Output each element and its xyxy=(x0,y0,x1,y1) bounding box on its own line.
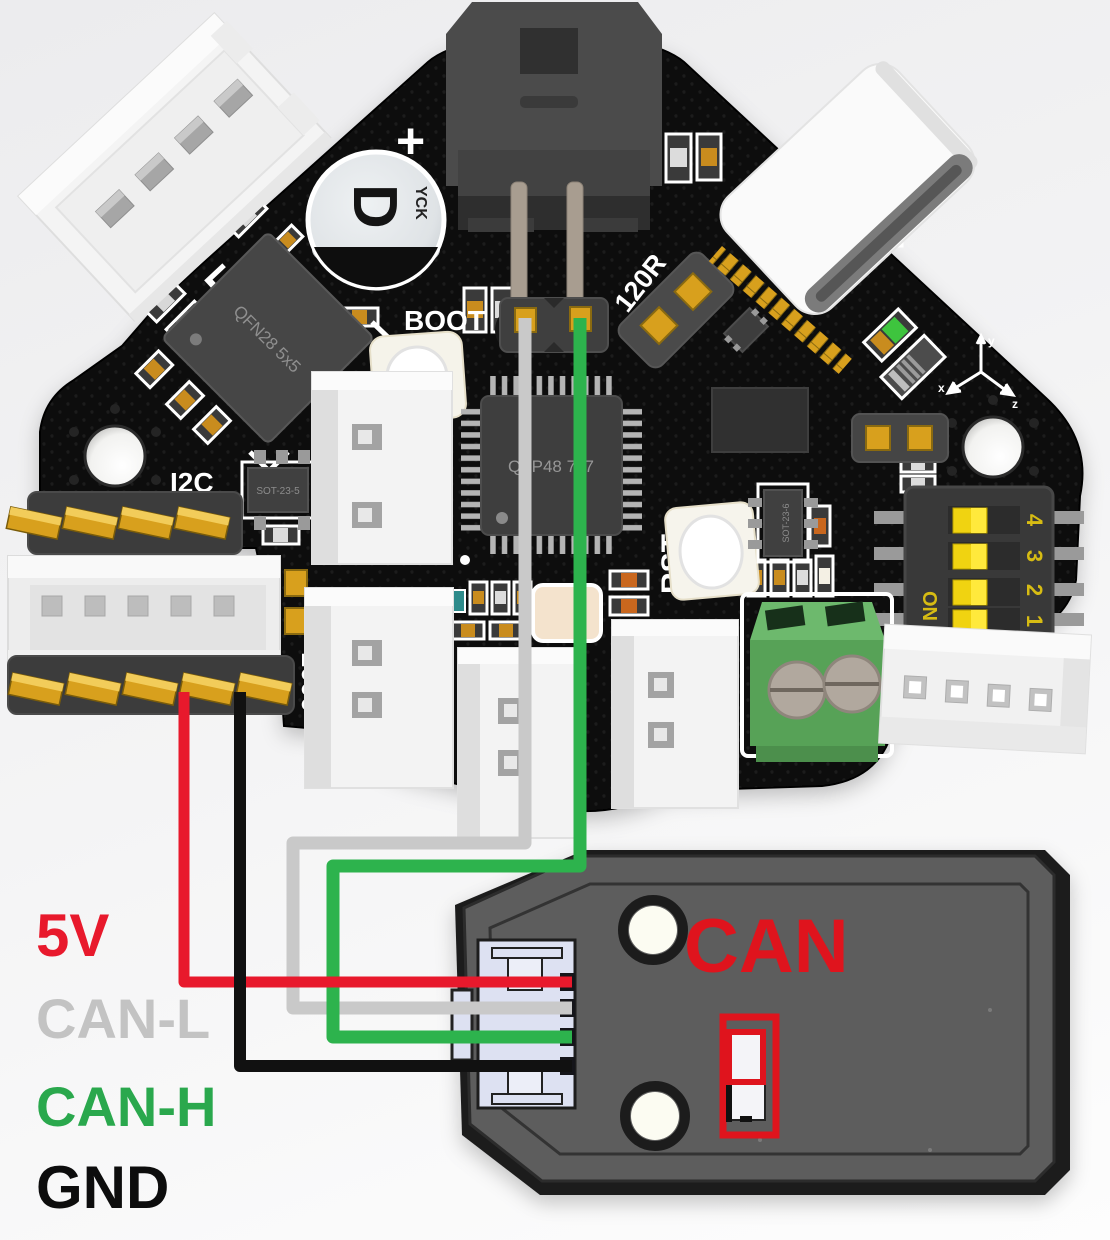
can-module xyxy=(452,850,1070,1195)
dip-label-3: 3 xyxy=(1022,550,1047,562)
label-gnd: GND xyxy=(36,1154,169,1221)
sot23-5-chip: SOT-23-5 xyxy=(242,450,314,530)
rst-button xyxy=(664,501,760,600)
controller-board: D YCK + xyxy=(6,2,1091,838)
jst-mid-a xyxy=(312,372,452,564)
i2c-header xyxy=(6,492,242,554)
dip-on-label: ON xyxy=(918,591,940,621)
label-5v: 5V xyxy=(36,902,109,969)
dip-label-2: 2 xyxy=(1022,584,1047,596)
crystal-oscillator xyxy=(533,585,601,641)
label-can-h: CAN-H xyxy=(36,1075,216,1138)
jst-bottom-d xyxy=(612,620,738,808)
dip-switch: 4 3 2 1 ON xyxy=(874,487,1084,643)
aux-ic xyxy=(712,388,808,452)
electrolytic-capacitor: D YCK xyxy=(308,152,444,288)
socket-5pin xyxy=(8,556,280,662)
plus-silk: + xyxy=(396,113,425,169)
can-signal-header xyxy=(500,298,608,352)
wiring-diagram: D YCK + xyxy=(0,0,1110,1240)
jst-bottom-c xyxy=(458,648,578,838)
module-hole-bottom xyxy=(631,1092,679,1140)
sot23-6-chip: SOT-23-6 xyxy=(748,484,818,562)
label-can-l: CAN-L xyxy=(36,987,210,1050)
can-module-title: CAN xyxy=(684,904,849,989)
cap-vendor: YCK xyxy=(412,186,429,220)
jumper-right xyxy=(852,414,948,462)
cap-mark: D xyxy=(340,184,409,229)
jst-mid-b xyxy=(305,588,453,788)
slide-switch-knob xyxy=(729,1032,763,1082)
dip-label-4: 4 xyxy=(1022,514,1047,527)
axis-x: x xyxy=(938,381,945,395)
slide-switch-body xyxy=(731,1082,765,1120)
dip-label-1: 1 xyxy=(1022,615,1047,627)
sot23-5-marking: SOT-23-5 xyxy=(256,486,300,497)
header-5pin xyxy=(8,656,294,714)
diagram-canvas: D YCK + xyxy=(0,0,1110,1240)
axis-z: z xyxy=(1012,397,1018,411)
screw-terminal xyxy=(742,594,892,762)
sot23-6-marking: SOT-23-6 xyxy=(781,503,791,542)
axis-y: y xyxy=(988,334,995,348)
module-hole-top xyxy=(629,906,677,954)
jst-bottom-right xyxy=(879,625,1091,754)
